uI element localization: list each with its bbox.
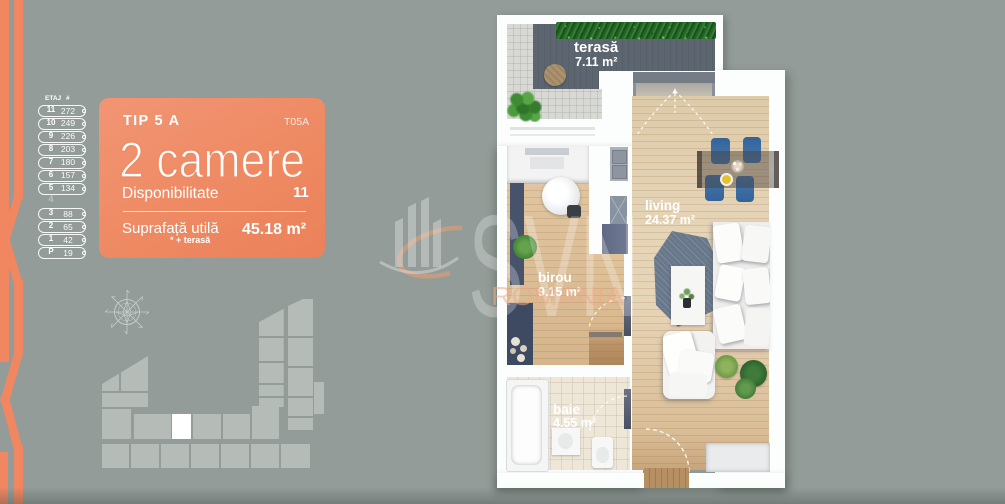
svg-text:ROMANIA: ROMANIA	[491, 283, 624, 311]
svg-text:2 camere: 2 camere	[119, 133, 305, 183]
